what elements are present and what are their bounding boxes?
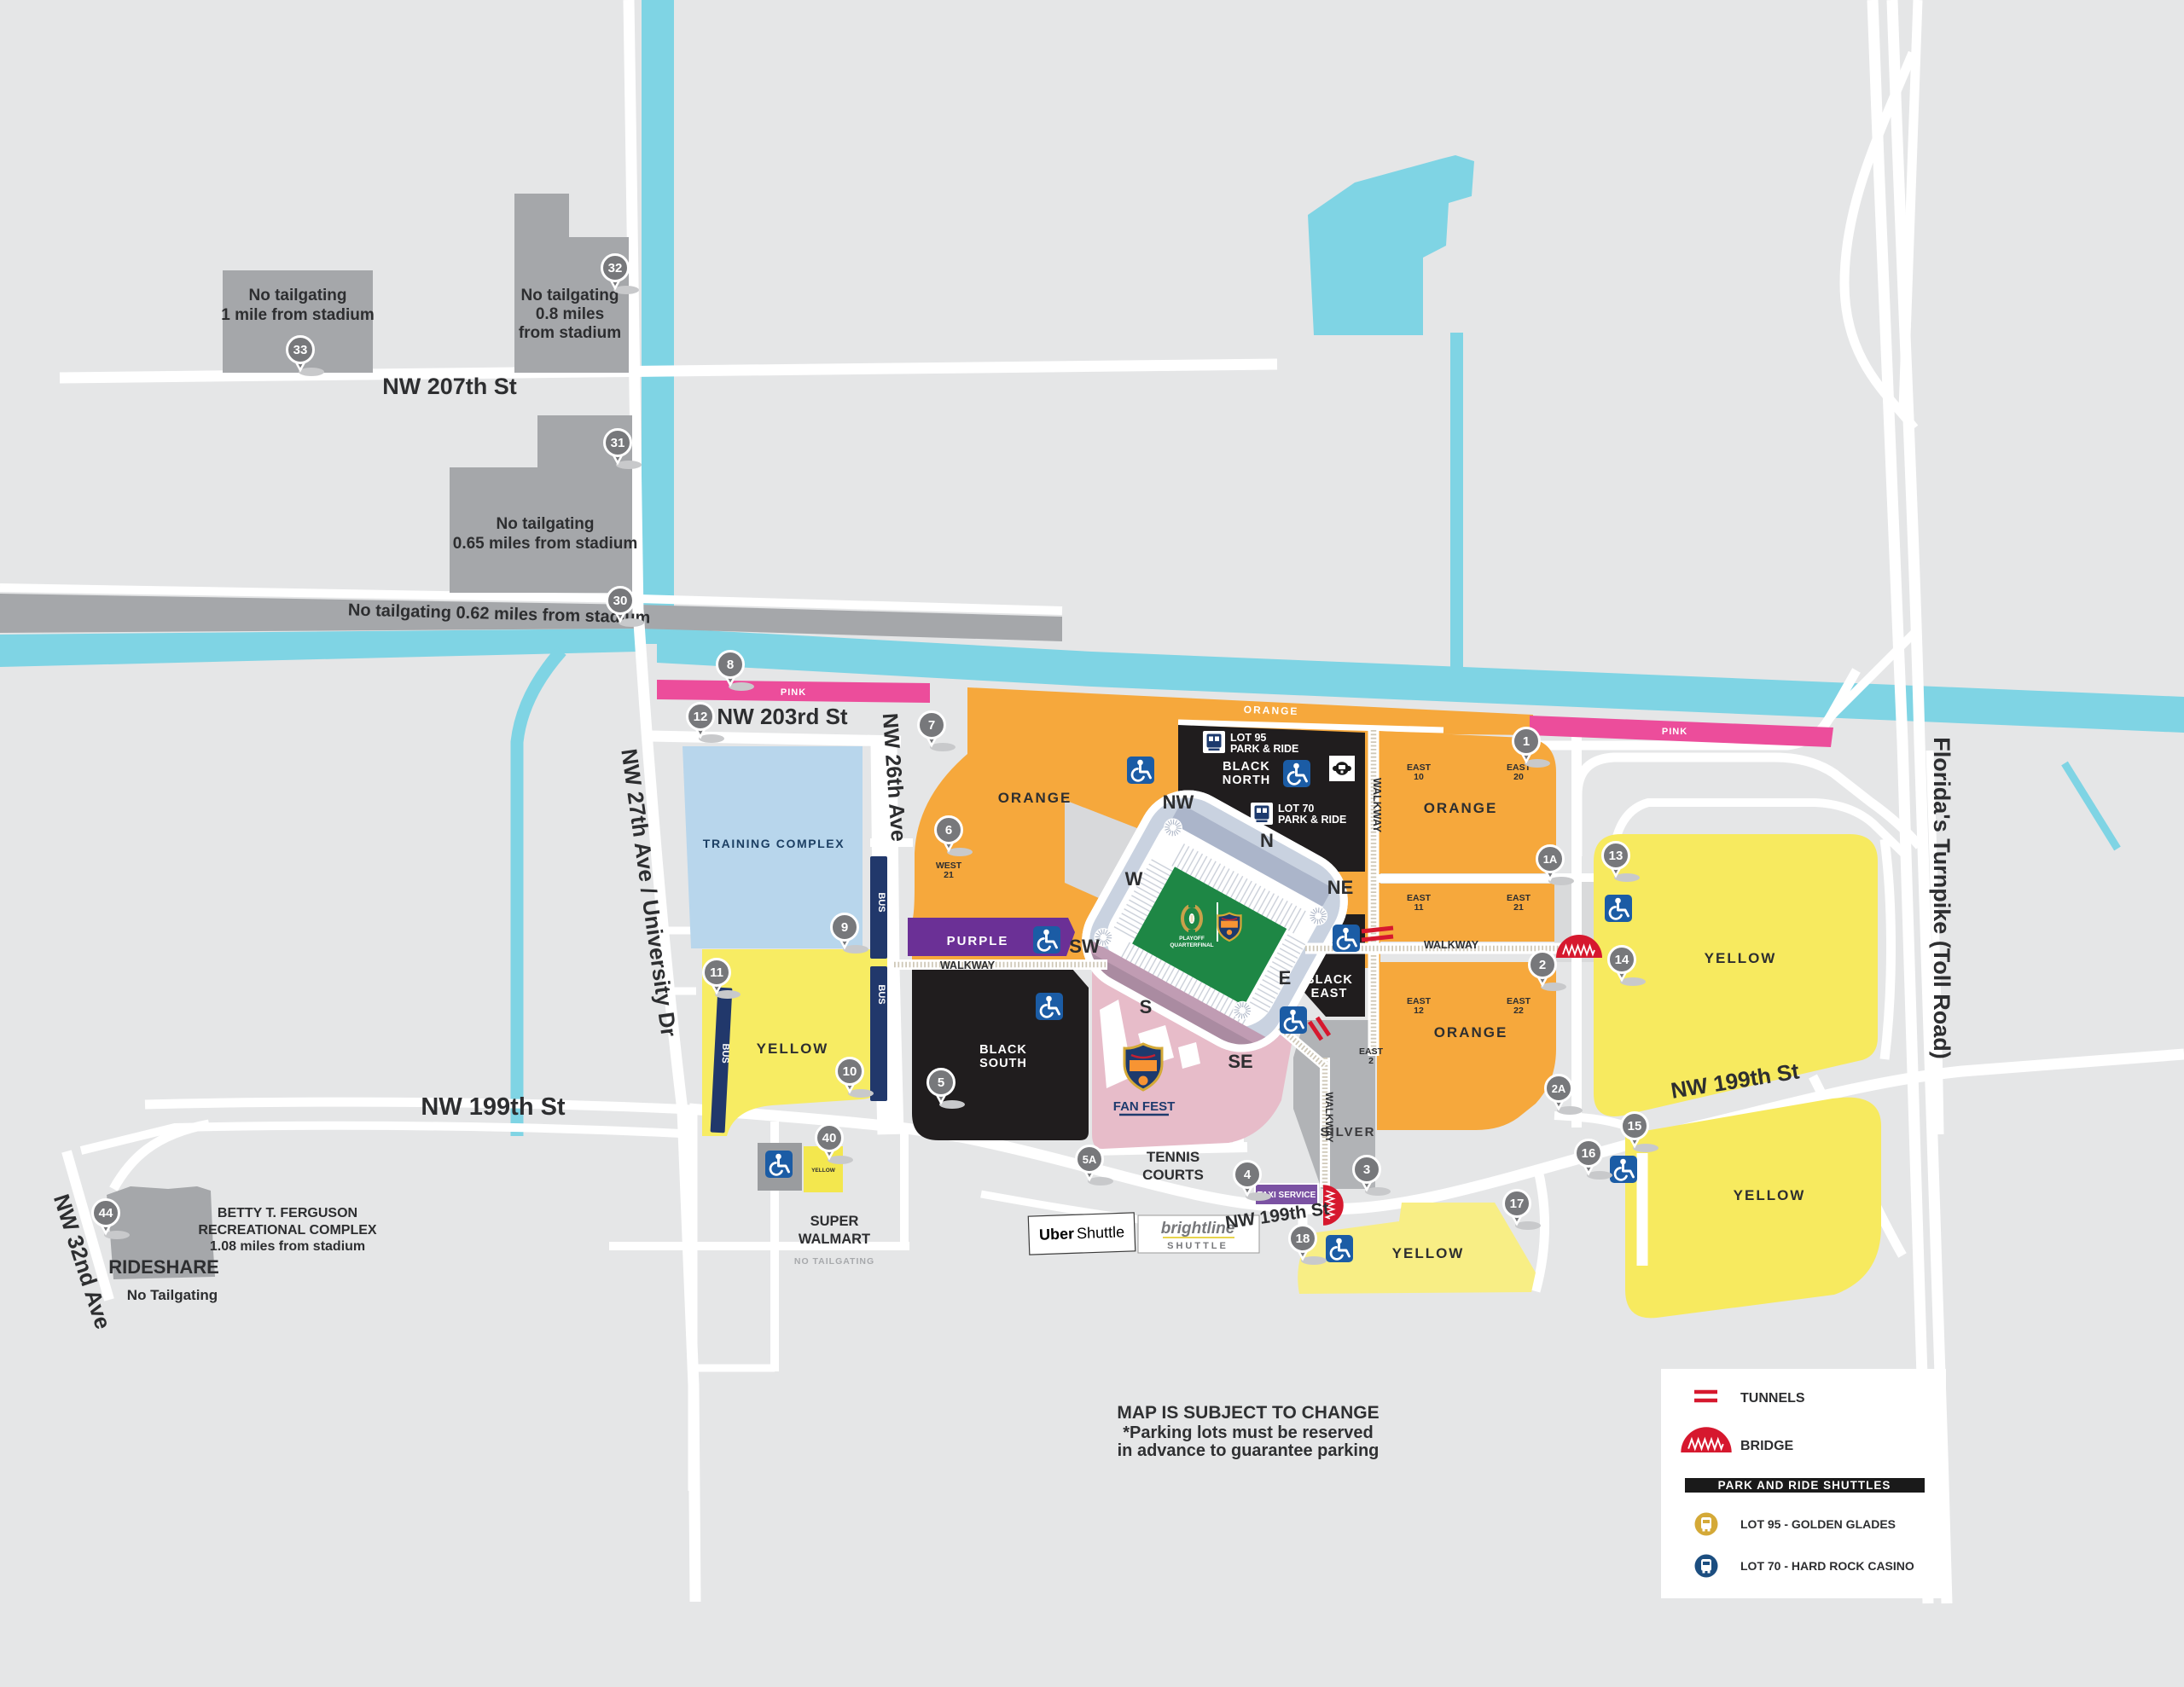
svg-text:FAN FEST: FAN FEST — [1113, 1099, 1176, 1114]
svg-text:0.8 miles: 0.8 miles — [536, 305, 604, 323]
svg-text:QUARTERFINAL: QUARTERFINAL — [1170, 942, 1213, 948]
svg-text:33: 33 — [293, 343, 308, 357]
svg-text:SUPER: SUPER — [810, 1214, 859, 1229]
svg-text:17: 17 — [1510, 1197, 1525, 1211]
svg-text:40: 40 — [822, 1131, 837, 1145]
svg-text:N: N — [1260, 830, 1274, 851]
svg-text:1: 1 — [1523, 734, 1530, 749]
svg-text:YELLOW: YELLOW — [1734, 1187, 1806, 1203]
svg-text:in advance to guarantee parkin: in advance to guarantee parking — [1118, 1441, 1380, 1460]
svg-text:13: 13 — [1609, 849, 1623, 863]
svg-text:WALKWAY: WALKWAY — [1371, 778, 1383, 833]
svg-text:NO TAILGATING: NO TAILGATING — [794, 1256, 874, 1267]
svg-text:LOT 70 - HARD ROCK CASINO: LOT 70 - HARD ROCK CASINO — [1740, 1559, 1914, 1573]
svg-text:E: E — [1279, 967, 1292, 988]
svg-text:BUS: BUS — [876, 984, 886, 1004]
svg-text:PARK AND RIDE SHUTTLES: PARK AND RIDE SHUTTLES — [1718, 1479, 1891, 1492]
svg-text:NW 207th St: NW 207th St — [382, 374, 517, 399]
svg-text:32: 32 — [608, 261, 623, 275]
svg-text:15: 15 — [1628, 1119, 1642, 1133]
svg-text:No tailgating: No tailgating — [248, 287, 346, 304]
svg-text:S: S — [1140, 996, 1153, 1017]
svg-text:NW 203rd St: NW 203rd St — [717, 704, 847, 729]
svg-text:44: 44 — [99, 1206, 113, 1220]
svg-text:SILVER: SILVER — [1320, 1125, 1375, 1139]
svg-text:brightline: brightline — [1161, 1220, 1235, 1238]
svg-text:10: 10 — [1414, 772, 1424, 782]
svg-text:PLAYOFF: PLAYOFF — [1179, 936, 1205, 942]
svg-text:BETTY T. FERGUSON: BETTY T. FERGUSON — [218, 1206, 357, 1220]
svg-text:9: 9 — [841, 920, 848, 935]
svg-text:LOT 95: LOT 95 — [1230, 732, 1266, 744]
svg-text:1A: 1A — [1543, 853, 1558, 866]
svg-text:SHUTTLE: SHUTTLE — [1167, 1241, 1228, 1251]
svg-text:7: 7 — [928, 718, 935, 733]
svg-text:6: 6 — [945, 823, 952, 838]
svg-text:from stadium: from stadium — [519, 324, 621, 342]
svg-text:NORTH: NORTH — [1223, 774, 1271, 787]
svg-text:YELLOW: YELLOW — [1392, 1245, 1465, 1261]
svg-text:5A: 5A — [1083, 1153, 1097, 1166]
svg-text:ORANGE: ORANGE — [1424, 800, 1498, 816]
svg-text:PARK & RIDE: PARK & RIDE — [1278, 814, 1346, 826]
svg-text:RECREATIONAL COMPLEX: RECREATIONAL COMPLEX — [198, 1223, 377, 1238]
svg-text:BUS: BUS — [720, 1043, 731, 1064]
svg-text:16: 16 — [1582, 1146, 1596, 1161]
svg-text:21: 21 — [944, 870, 954, 880]
svg-text:18: 18 — [1296, 1232, 1310, 1246]
svg-text:MAP IS SUBJECT TO CHANGE: MAP IS SUBJECT TO CHANGE — [1117, 1403, 1379, 1423]
svg-text:ORANGE: ORANGE — [1434, 1024, 1508, 1041]
svg-text:8: 8 — [727, 658, 734, 672]
svg-text:22: 22 — [1513, 1006, 1524, 1016]
svg-text:ORANGE: ORANGE — [1244, 704, 1299, 717]
svg-text:BRIDGE: BRIDGE — [1740, 1439, 1794, 1453]
svg-text:No tailgating: No tailgating — [496, 515, 594, 533]
svg-text:21: 21 — [1513, 902, 1524, 913]
svg-text:*Parking lots must be reserved: *Parking lots must be reserved — [1123, 1423, 1373, 1442]
svg-text:PARK & RIDE: PARK & RIDE — [1230, 743, 1298, 755]
svg-text:30: 30 — [613, 594, 628, 608]
svg-text:No tailgating: No tailgating — [520, 287, 619, 304]
svg-text:3: 3 — [1363, 1162, 1370, 1177]
svg-text:PINK: PINK — [1662, 727, 1687, 737]
svg-text:UberShuttle: UberShuttle — [1039, 1223, 1125, 1243]
svg-text:5: 5 — [938, 1075, 944, 1090]
svg-text:No Tailgating: No Tailgating — [127, 1287, 218, 1303]
svg-text:NW 199th St: NW 199th St — [421, 1093, 566, 1121]
svg-text:1.08 miles from stadium: 1.08 miles from stadium — [210, 1239, 365, 1254]
svg-text:WALKWAY: WALKWAY — [940, 959, 996, 971]
svg-text:RIDESHARE: RIDESHARE — [108, 1256, 219, 1278]
svg-text:WALMART: WALMART — [799, 1232, 870, 1247]
svg-text:W: W — [1125, 868, 1143, 890]
svg-text:12: 12 — [1414, 1006, 1424, 1016]
svg-text:2A: 2A — [1552, 1082, 1566, 1095]
svg-text:Florida's Turnpike (Toll Road): Florida's Turnpike (Toll Road) — [1929, 737, 1955, 1058]
svg-text:20: 20 — [1513, 772, 1524, 782]
svg-text:YELLOW: YELLOW — [757, 1041, 829, 1057]
svg-text:11: 11 — [1414, 902, 1423, 913]
svg-text:TUNNELS: TUNNELS — [1740, 1391, 1805, 1406]
svg-text:YELLOW: YELLOW — [811, 1168, 836, 1174]
svg-text:SW: SW — [1069, 936, 1100, 957]
svg-text:LOT 95 - GOLDEN GLADES: LOT 95 - GOLDEN GLADES — [1740, 1517, 1896, 1531]
svg-text:WALKWAY: WALKWAY — [1424, 939, 1479, 951]
svg-text:COURTS: COURTS — [1142, 1167, 1204, 1183]
svg-text:PINK: PINK — [781, 687, 806, 698]
svg-text:TRAINING COMPLEX: TRAINING COMPLEX — [703, 837, 845, 850]
svg-text:SE: SE — [1228, 1051, 1252, 1072]
svg-text:NW: NW — [1163, 791, 1194, 813]
svg-text:BUS: BUS — [876, 892, 886, 912]
svg-text:TENNIS: TENNIS — [1147, 1149, 1199, 1165]
svg-text:BLACK: BLACK — [1223, 760, 1270, 774]
svg-text:BLACK: BLACK — [979, 1043, 1027, 1057]
svg-text:ORANGE: ORANGE — [998, 790, 1072, 806]
svg-text:BLACK: BLACK — [1305, 973, 1353, 987]
svg-text:11: 11 — [710, 965, 723, 980]
svg-text:SOUTH: SOUTH — [979, 1057, 1027, 1070]
svg-text:2: 2 — [1539, 958, 1546, 972]
svg-text:4: 4 — [1244, 1168, 1252, 1182]
svg-text:NE: NE — [1327, 877, 1354, 898]
svg-text:YELLOW: YELLOW — [1705, 950, 1777, 966]
svg-text:PURPLE: PURPLE — [947, 934, 1009, 948]
svg-text:2: 2 — [1368, 1056, 1374, 1066]
svg-text:10: 10 — [843, 1064, 857, 1079]
svg-text:12: 12 — [694, 710, 708, 724]
svg-text:0.65 miles from stadium: 0.65 miles from stadium — [453, 535, 637, 553]
svg-text:1 mile from stadium: 1 mile from stadium — [221, 306, 375, 324]
svg-text:14: 14 — [1615, 953, 1629, 967]
svg-text:LOT 70: LOT 70 — [1278, 803, 1314, 815]
svg-text:EAST: EAST — [1311, 987, 1348, 1000]
svg-text:31: 31 — [611, 436, 625, 450]
